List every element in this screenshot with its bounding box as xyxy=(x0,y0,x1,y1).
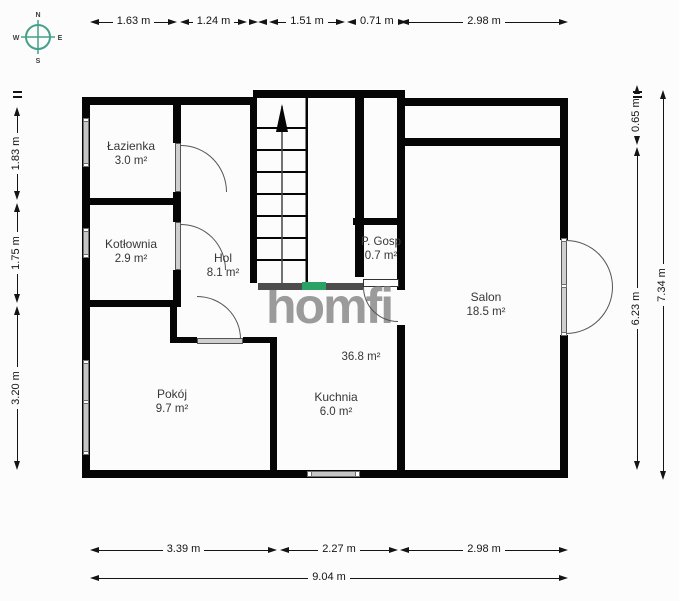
room-name: Salon xyxy=(467,290,506,305)
room-area: 36.8 m² xyxy=(342,350,381,364)
dim-label: 2.27 m xyxy=(318,543,360,555)
room-label-salon: Salon 18.5 m² xyxy=(467,290,506,319)
dim-label: 9.04 m xyxy=(308,571,350,583)
open-area-label: 36.8 m² xyxy=(342,350,381,364)
dim-right-total: 7.34 m xyxy=(656,90,670,480)
room-area: 8.1 m² xyxy=(207,266,240,280)
wall-hall-west-b xyxy=(173,192,181,222)
compass-s: S xyxy=(36,58,41,64)
compass-icon: N E S W xyxy=(10,6,66,69)
bathroom-door-arc xyxy=(181,145,227,192)
room-name: P. Gosp xyxy=(361,235,401,249)
dim-bottom-2: 2.27 m xyxy=(280,543,398,557)
window-cap xyxy=(83,118,89,122)
dim-label: 1.83 m xyxy=(10,133,22,175)
wall-room-kitchen-divider xyxy=(270,343,277,470)
dim-bottom-3: 2.98 m xyxy=(400,543,568,557)
dim-bottom-1: 3.39 m xyxy=(90,543,277,557)
dim-left-2: 1.75 m xyxy=(10,203,24,303)
floor-plan: homfi Łazienka 3.0 m² Kotłownia 2.9 m² H… xyxy=(0,0,679,601)
window-cap xyxy=(307,471,312,477)
dim-left-3: 3.20 m xyxy=(10,306,24,470)
dim-right-2: 6.23 m xyxy=(630,147,644,470)
tick-mark xyxy=(13,91,22,93)
wall-salon-west-lower xyxy=(397,325,405,470)
wall-exterior-top-salon xyxy=(398,98,568,106)
room-name: Kotłownia xyxy=(105,237,157,252)
compass-e: E xyxy=(58,35,63,42)
dim-top-1: 1.63 m xyxy=(90,15,177,29)
compass-n: N xyxy=(35,12,40,19)
room-area: 3.0 m² xyxy=(107,154,155,168)
wall-bathroom-boiler-divider xyxy=(82,198,180,205)
room-window xyxy=(83,360,89,455)
dim-label: 1.75 m xyxy=(10,232,22,274)
wall-hall-west-d xyxy=(170,307,177,343)
room-name: Kuchnia xyxy=(314,390,357,405)
wall-boiler-bottom xyxy=(82,300,177,307)
window-cap xyxy=(83,228,89,232)
kitchen-window xyxy=(307,471,360,477)
wall-exterior-right-lower xyxy=(560,335,568,478)
dim-right-1: 0.65 m xyxy=(630,100,644,145)
room-area: 18.5 m² xyxy=(467,305,506,319)
dim-label: 1.51 m xyxy=(286,15,328,27)
dim-top-5: 2.98 m xyxy=(400,15,568,29)
room-area: 9.7 m² xyxy=(156,402,189,416)
room-area: 0.7 m² xyxy=(361,249,401,263)
dim-label: 1.24 m xyxy=(193,15,235,27)
room-label-room: Pokój 9.7 m² xyxy=(156,387,189,416)
dim-label: 2.98 m xyxy=(463,543,505,555)
staircase xyxy=(257,98,308,283)
room-name: Pokój xyxy=(156,387,189,402)
green-accent-marker xyxy=(302,282,326,290)
room-label-bathroom: Łazienka 3.0 m² xyxy=(107,139,155,168)
french-door-bottom-arc xyxy=(566,287,613,334)
dim-label: 3.20 m xyxy=(10,367,22,409)
dim-label: 0.65 m xyxy=(630,94,642,136)
bathroom-window xyxy=(83,118,89,167)
dim-label: 7.34 m xyxy=(656,264,668,306)
window-cap xyxy=(83,451,89,455)
stair-up-arrow-icon xyxy=(276,104,288,132)
dim-top-4: 0.71 m xyxy=(347,15,398,29)
wall-room-top-left xyxy=(177,337,197,343)
tick-mark xyxy=(13,96,22,98)
wall-exterior-top xyxy=(82,97,257,105)
room-name: Łazienka xyxy=(107,139,155,154)
window-cap xyxy=(83,254,89,258)
french-door-top-arc xyxy=(566,240,613,287)
wall-salon-strip-bottom xyxy=(398,138,560,146)
dim-top-2: 1.24 m xyxy=(180,15,247,29)
dim-label: 3.39 m xyxy=(163,543,205,555)
dim-top-3: 1.51 m xyxy=(269,15,345,29)
wall-exterior-top-bay xyxy=(253,90,405,98)
wall-exterior-right-upper xyxy=(560,98,568,240)
wall-hall-west-a xyxy=(173,97,181,143)
room-label-hall: Hol 8.1 m² xyxy=(207,251,240,280)
window-cap xyxy=(355,471,360,477)
room-label-utility: P. Gosp 0.7 m² xyxy=(361,235,401,264)
dim-label: 2.98 m xyxy=(463,15,505,27)
room-name: Hol xyxy=(207,251,240,266)
dim-label: 1.63 m xyxy=(113,15,155,27)
window-cap xyxy=(83,400,89,404)
room-area: 6.0 m² xyxy=(314,405,357,419)
dim-label: 0.71 m xyxy=(356,15,398,27)
compass-w: W xyxy=(13,35,20,42)
room-door-arc xyxy=(197,296,241,339)
dim-bottom-total: 9.04 m xyxy=(90,571,568,585)
room-area: 2.9 m² xyxy=(105,252,157,266)
window-cap xyxy=(83,163,89,167)
dim-left-1: 1.83 m xyxy=(10,107,24,200)
room-label-kitchen: Kuchnia 6.0 m² xyxy=(314,390,357,419)
window-cap xyxy=(83,360,89,364)
wall-stairs-left xyxy=(250,98,257,283)
room-label-boiler: Kotłownia 2.9 m² xyxy=(105,237,157,266)
wall-hall-west-c xyxy=(173,270,181,307)
dim-top-tiny xyxy=(249,15,267,29)
dim-label: 6.23 m xyxy=(630,288,642,330)
